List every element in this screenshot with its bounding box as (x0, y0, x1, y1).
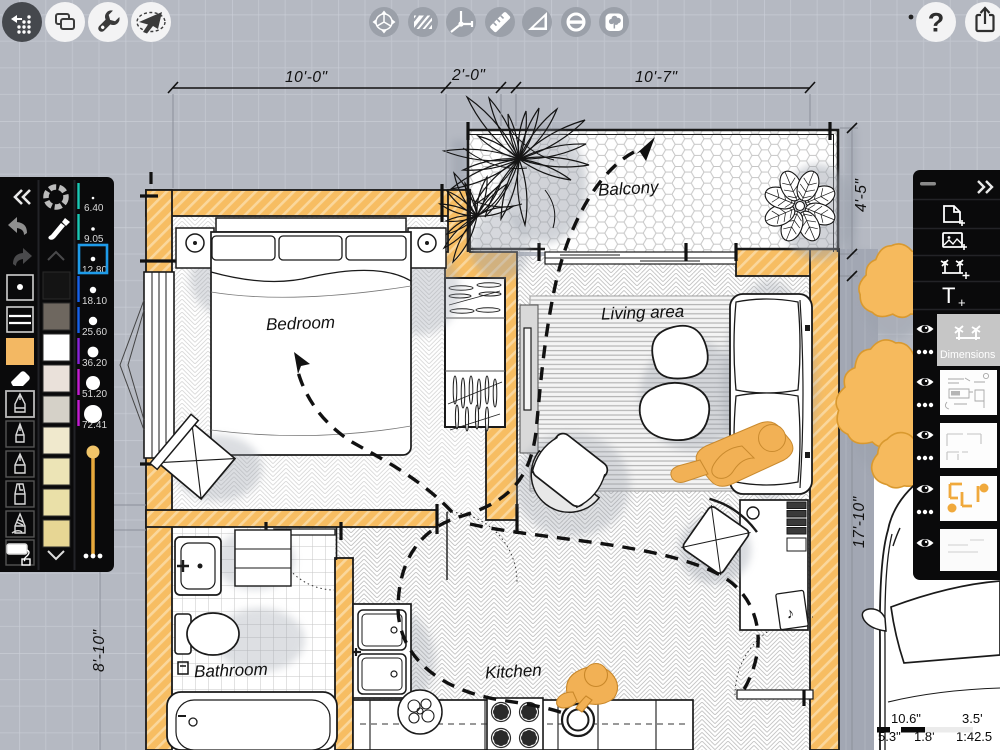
svg-text:3.5': 3.5' (962, 711, 983, 726)
svg-text:2'-0": 2'-0" (451, 67, 486, 84)
svg-text:Bedroom: Bedroom (266, 313, 336, 334)
svg-text:T: T (942, 283, 955, 308)
svg-text:Bathroom: Bathroom (194, 660, 268, 682)
svg-text:Kitchen: Kitchen (485, 661, 543, 683)
svg-text:25.60: 25.60 (82, 327, 107, 338)
svg-text:4'-5": 4'-5" (853, 178, 870, 212)
svg-text:10.6": 10.6" (891, 711, 921, 726)
svg-text:10'-0": 10'-0" (285, 69, 328, 86)
svg-text:18.10: 18.10 (82, 296, 107, 307)
svg-text:9.05: 9.05 (84, 234, 104, 245)
svg-text:Dimensions: Dimensions (940, 349, 995, 361)
svg-text:17'-10": 17'-10" (851, 495, 868, 548)
svg-text:12.80: 12.80 (82, 265, 107, 276)
svg-text:Living area: Living area (601, 302, 685, 324)
svg-text:8'-10": 8'-10" (91, 629, 108, 672)
svg-text:Balcony: Balcony (598, 178, 661, 200)
svg-text:+: + (958, 295, 966, 310)
svg-text:51.20: 51.20 (82, 389, 107, 400)
svg-text:6.40: 6.40 (84, 203, 104, 214)
svg-text:?: ? (928, 8, 945, 38)
svg-text:36.20: 36.20 (82, 358, 107, 369)
svg-text:10'-7": 10'-7" (635, 69, 678, 86)
